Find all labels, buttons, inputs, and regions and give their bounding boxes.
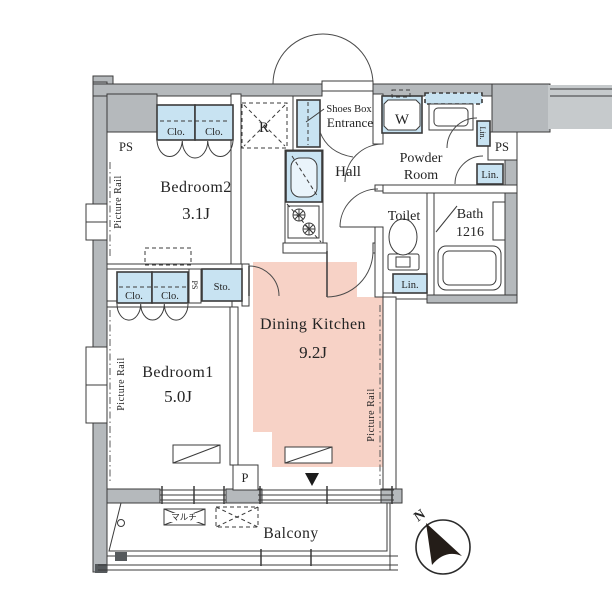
floorplan-page: PS Picture Rail Bedroom2 3.1J Clo. Clo. … — [0, 0, 612, 610]
toilet-bowl — [389, 219, 417, 255]
closet-door-scallops — [157, 141, 233, 158]
label-linen-small: Lin. — [478, 126, 487, 139]
label-closet: Clo. — [161, 291, 179, 302]
label-bedroom2-area: 3.1J — [182, 204, 210, 223]
wall-corner-block — [107, 94, 157, 132]
label-entrance: Entrance — [327, 115, 373, 130]
label-bedroom2: Bedroom2 — [160, 179, 232, 196]
label-multi-outlet: マルチ — [171, 512, 197, 522]
adjacent-structure — [548, 85, 612, 129]
label-dining-kitchen-area: 9.2J — [299, 343, 327, 362]
mirror-cabinet — [425, 93, 482, 104]
compass — [416, 520, 470, 574]
bath-counter — [493, 202, 505, 240]
wall-bottom-left — [107, 489, 160, 503]
wall-toilet-bath-divider — [427, 193, 434, 295]
label-closet: Clo. — [205, 127, 223, 138]
label-closet: Clo. — [125, 291, 143, 302]
label-closet: Clo. — [167, 127, 185, 138]
entrance-step — [320, 132, 353, 157]
label-picture-rail-dk: Picture Rail — [366, 388, 377, 442]
vanity-bowl — [434, 108, 468, 126]
wall-hall-dk-left — [283, 243, 327, 253]
ac-outdoor-unit — [216, 507, 258, 527]
wall-powder-bottom — [383, 185, 517, 193]
label-ps-small: PS — [190, 281, 199, 290]
shoes-box — [297, 100, 324, 147]
label-pillar: P — [242, 471, 249, 485]
label-powder-room: Room — [404, 168, 438, 183]
wall-right — [505, 160, 517, 303]
entrance-door-slab — [322, 81, 373, 91]
label-linen-toilet: Lin. — [401, 280, 418, 291]
wall-bath-bottom — [427, 295, 517, 303]
label-picture-rail-bedroom2: Picture Rail — [113, 175, 124, 229]
label-refrigerator: R — [259, 120, 269, 136]
floorplan-drawing: PS Picture Rail Bedroom2 3.1J Clo. Clo. … — [0, 0, 612, 610]
kitchen-sink — [291, 158, 317, 197]
toilet-door-arc — [340, 189, 378, 227]
label-picture-rail-bedroom1: Picture Rail — [116, 357, 127, 411]
label-dining-kitchen: Dining Kitchen — [260, 316, 366, 333]
wall-bottom-center — [226, 489, 262, 503]
label-ps-topright: PS — [495, 140, 509, 154]
label-bath: Bath — [457, 207, 483, 222]
label-balcony: Balcony — [263, 525, 318, 542]
label-toilet: Toilet — [388, 209, 421, 224]
label-bedroom1-area: 5.0J — [164, 387, 192, 406]
wall-toilet-left-top — [375, 185, 383, 191]
label-powder: Powder — [400, 151, 443, 166]
label-bedroom1: Bedroom1 — [142, 364, 214, 381]
bath-door — [436, 206, 457, 232]
window-dk-balcony — [258, 486, 394, 504]
balcony-access-marker — [305, 473, 319, 486]
label-bath-size: 1216 — [456, 225, 484, 240]
bathtub-inner — [443, 251, 496, 285]
label-ps-topleft: PS — [119, 140, 133, 154]
wall-bedroom1-right — [230, 307, 238, 465]
balcony — [98, 503, 398, 570]
dining-kitchen-floor — [253, 262, 383, 467]
ac-unit-bedroom2 — [145, 248, 191, 265]
balcony-windows — [160, 486, 394, 504]
north-arrow-icon — [426, 523, 462, 565]
label-shoes-box: Shoes Box — [326, 104, 372, 115]
label-hall: Hall — [335, 164, 361, 180]
toilet-lid — [396, 257, 410, 267]
kitchen — [285, 150, 323, 243]
structural-column — [492, 84, 550, 132]
window-bedroom1-balcony — [160, 486, 226, 504]
label-linen-powder: Lin. — [481, 170, 498, 181]
label-storage: Sto. — [214, 282, 231, 293]
wall-dk-right — [383, 297, 396, 489]
drain-icon — [118, 520, 125, 527]
wall-closet-row-right — [242, 264, 249, 306]
wall-left — [93, 82, 107, 572]
entrance-door-arc — [273, 34, 373, 84]
balcony-dark-block — [115, 552, 127, 561]
wall-toilet-left — [375, 227, 383, 297]
label-washer: W — [395, 112, 410, 128]
label-north: N — [412, 507, 429, 525]
